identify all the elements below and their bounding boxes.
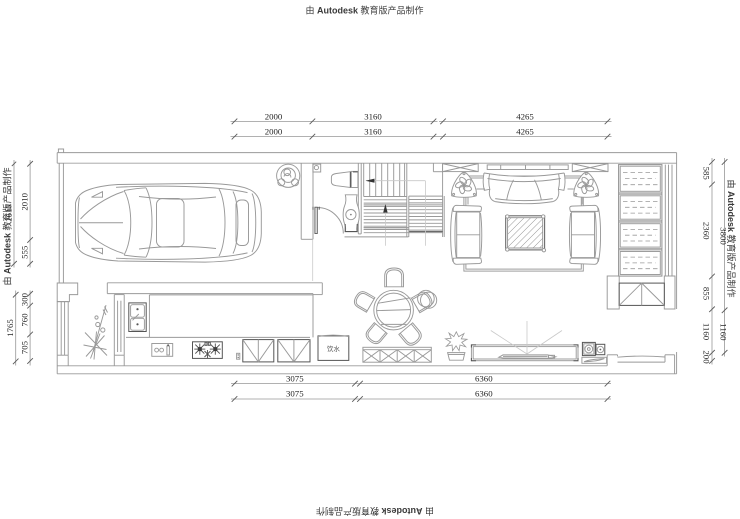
svg-text:由 Autodesk 教育版产品制作: 由 Autodesk 教育版产品制作 xyxy=(305,5,423,16)
svg-text:3160: 3160 xyxy=(364,127,382,137)
svg-text:555: 555 xyxy=(20,245,30,259)
svg-text:饮水: 饮水 xyxy=(327,344,341,353)
svg-text:6360: 6360 xyxy=(475,373,493,383)
svg-text:855: 855 xyxy=(701,287,711,301)
svg-text:4265: 4265 xyxy=(516,111,534,121)
svg-text:1160: 1160 xyxy=(701,323,711,341)
svg-text:由 Autodesk 教育版产品制作: 由 Autodesk 教育版产品制作 xyxy=(316,506,434,517)
svg-text:705: 705 xyxy=(20,340,30,354)
svg-text:200: 200 xyxy=(701,350,711,364)
svg-text:300: 300 xyxy=(20,292,30,306)
svg-text:3160: 3160 xyxy=(364,111,382,121)
svg-text:由 Autodesk 教育版产品制作: 由 Autodesk 教育版产品制作 xyxy=(1,167,12,285)
svg-text:3800: 3800 xyxy=(719,227,729,245)
svg-text:2010: 2010 xyxy=(20,192,30,210)
svg-text:4265: 4265 xyxy=(516,127,534,137)
svg-text:1765: 1765 xyxy=(5,319,15,337)
svg-text:585: 585 xyxy=(701,167,711,181)
svg-text:2360: 2360 xyxy=(701,222,711,240)
svg-text:6360: 6360 xyxy=(475,389,493,399)
svg-text:1160: 1160 xyxy=(719,323,729,341)
svg-text:3075: 3075 xyxy=(286,373,304,383)
svg-text:3075: 3075 xyxy=(286,389,304,399)
svg-text:2000: 2000 xyxy=(265,127,283,137)
svg-text:760: 760 xyxy=(20,313,30,327)
svg-text:2000: 2000 xyxy=(265,111,283,121)
svg-text:2610: 2610 xyxy=(3,204,13,222)
